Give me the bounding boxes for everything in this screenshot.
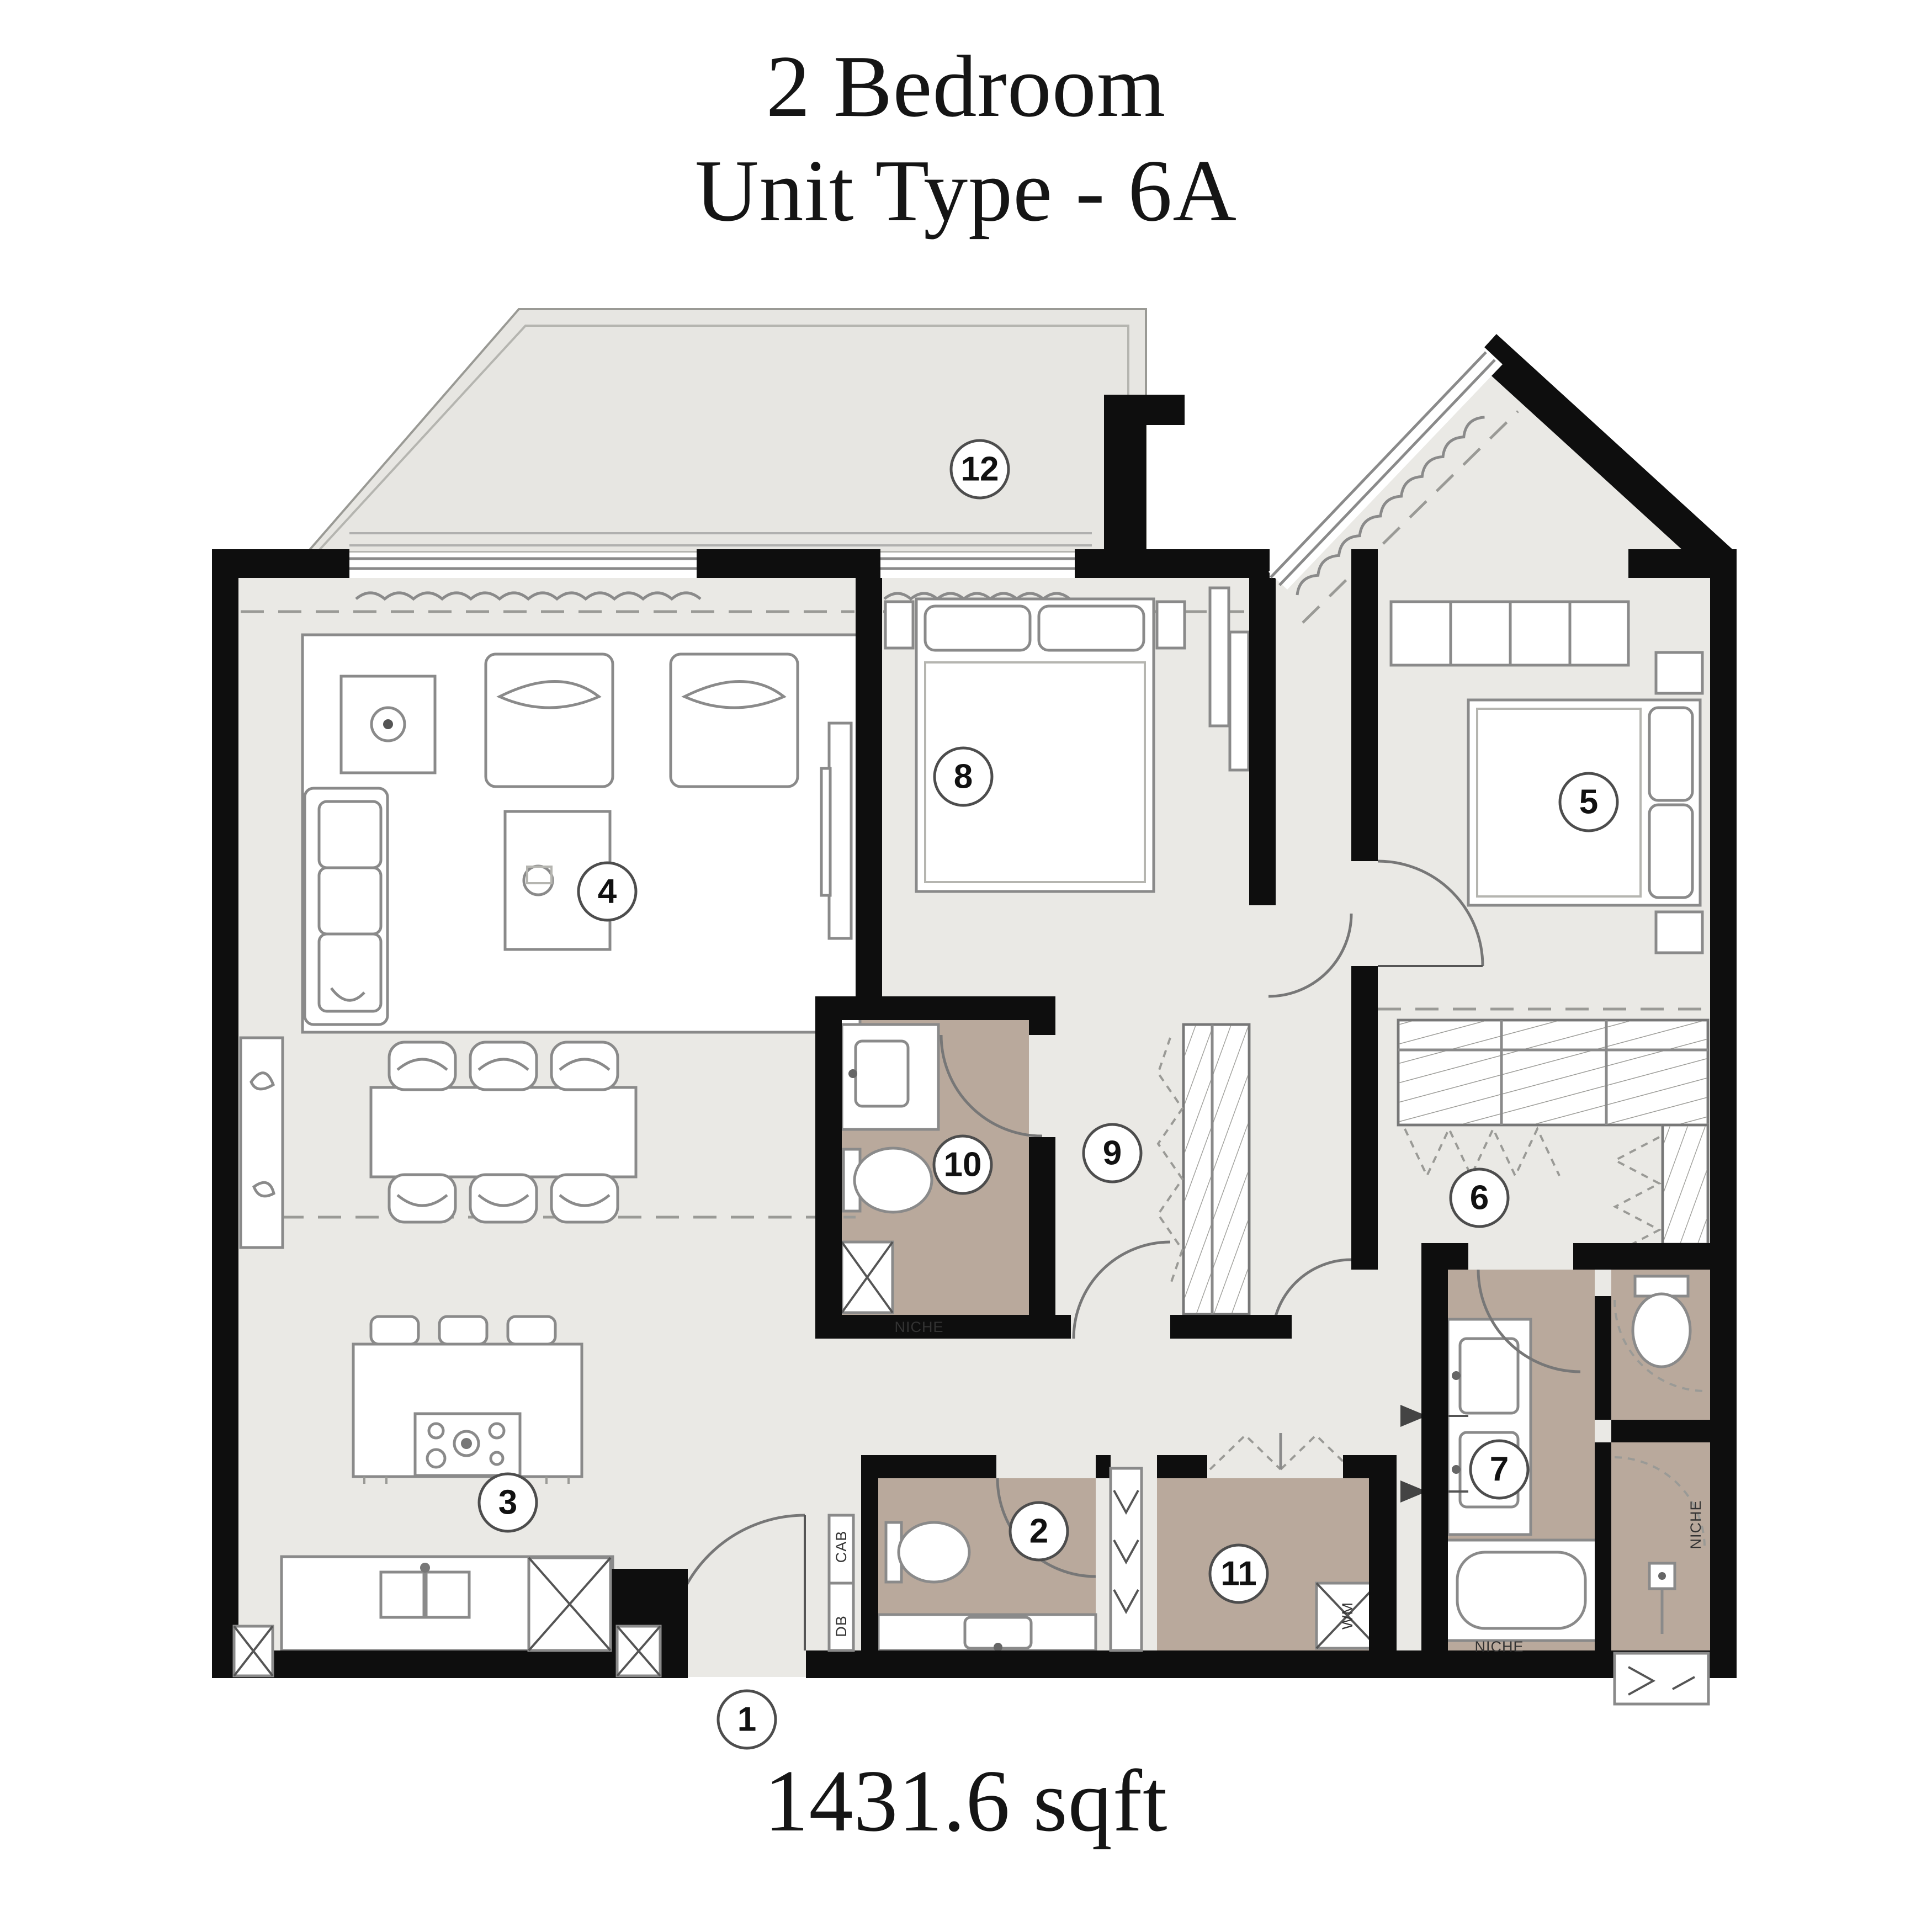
badge-1-number: 1 <box>737 1701 756 1739</box>
badge-4-number: 4 <box>598 873 617 911</box>
dining-table <box>371 1087 636 1177</box>
room-badge-2: 2 <box>1010 1503 1068 1560</box>
nightstand <box>1656 912 1702 953</box>
bed5-closet-band <box>1391 602 1628 665</box>
nightstand <box>885 602 913 648</box>
niche-label-wc: NICHE <box>1687 1500 1704 1549</box>
column-x-right <box>617 1626 660 1676</box>
plant-shelf <box>241 1038 283 1248</box>
badge-2-number: 2 <box>1029 1512 1048 1551</box>
area-label: 1431.6 sqft <box>0 1750 1932 1852</box>
badge-3-number: 3 <box>498 1484 517 1522</box>
badge-5-number: 5 <box>1579 783 1598 821</box>
badge-10-number: 10 <box>944 1146 982 1184</box>
vent-shaft-chevron <box>1111 1468 1142 1650</box>
sink-symbol <box>856 1041 908 1106</box>
shaft-x-box <box>529 1558 611 1650</box>
pillow <box>1649 708 1692 800</box>
niche-label-tub: NICHE <box>1474 1638 1524 1655</box>
room-badge-9: 9 <box>1084 1124 1141 1182</box>
shower-niche <box>842 1242 893 1313</box>
dining-chairs-bottom <box>389 1175 618 1222</box>
floorplan-page: 2 Bedroom Unit Type - 6A <box>0 0 1932 1932</box>
room-badge-5: 5 <box>1560 773 1617 831</box>
dining-chairs-top <box>389 1042 618 1090</box>
badge-11-number: 11 <box>1220 1555 1257 1593</box>
room-badge-10: 10 <box>934 1136 991 1193</box>
living-room <box>302 635 860 1032</box>
badge-7-number: 7 <box>1490 1451 1509 1489</box>
bathtub <box>1441 1540 1601 1641</box>
balcony <box>298 309 1146 563</box>
room-badge-3: 3 <box>479 1474 537 1531</box>
cab-label: CAB <box>833 1531 850 1563</box>
toilet-symbol <box>886 1522 969 1582</box>
nightstand <box>1157 602 1185 648</box>
room-badge-7: 7 <box>1471 1441 1528 1498</box>
badge-12-number: 12 <box>961 450 999 489</box>
floor-plan-drawing: 1 2 3 4 5 6 7 8 9 10 11 12 NICHE NICHE N… <box>0 0 1932 1932</box>
washer-label: WM <box>1339 1602 1356 1630</box>
column-x-left <box>234 1626 273 1676</box>
badge-8-number: 8 <box>954 758 973 796</box>
sink-symbol <box>1460 1339 1518 1413</box>
badge-6-number: 6 <box>1470 1179 1489 1217</box>
room-badge-1: 1 <box>718 1691 776 1748</box>
window-living <box>349 553 697 575</box>
shower-box-bottom-right <box>1615 1653 1708 1704</box>
db-label: DB <box>833 1615 850 1637</box>
lamp-dot <box>383 719 393 729</box>
sofa <box>305 788 388 1025</box>
toilet-symbol <box>843 1148 932 1212</box>
wc-toilet-symbol <box>1633 1276 1690 1367</box>
niche-label-bath10: NICHE <box>894 1319 943 1335</box>
badge-9-number: 9 <box>1103 1134 1122 1172</box>
room-badge-6: 6 <box>1451 1169 1508 1227</box>
room-badge-4: 4 <box>578 863 636 920</box>
room-badge-8: 8 <box>935 748 992 805</box>
kitchen-island <box>353 1317 582 1489</box>
pillow <box>1649 805 1692 898</box>
entry-threshold-floor <box>688 1650 806 1677</box>
nightstand <box>1656 652 1702 693</box>
armchair-1 <box>486 654 613 787</box>
room-badge-11: 11 <box>1210 1545 1267 1602</box>
window-bedroom8 <box>880 553 1075 575</box>
armchair-2 <box>671 654 798 787</box>
room-badge-12: 12 <box>951 440 1009 498</box>
pillow <box>1039 606 1144 650</box>
pillow <box>925 606 1030 650</box>
